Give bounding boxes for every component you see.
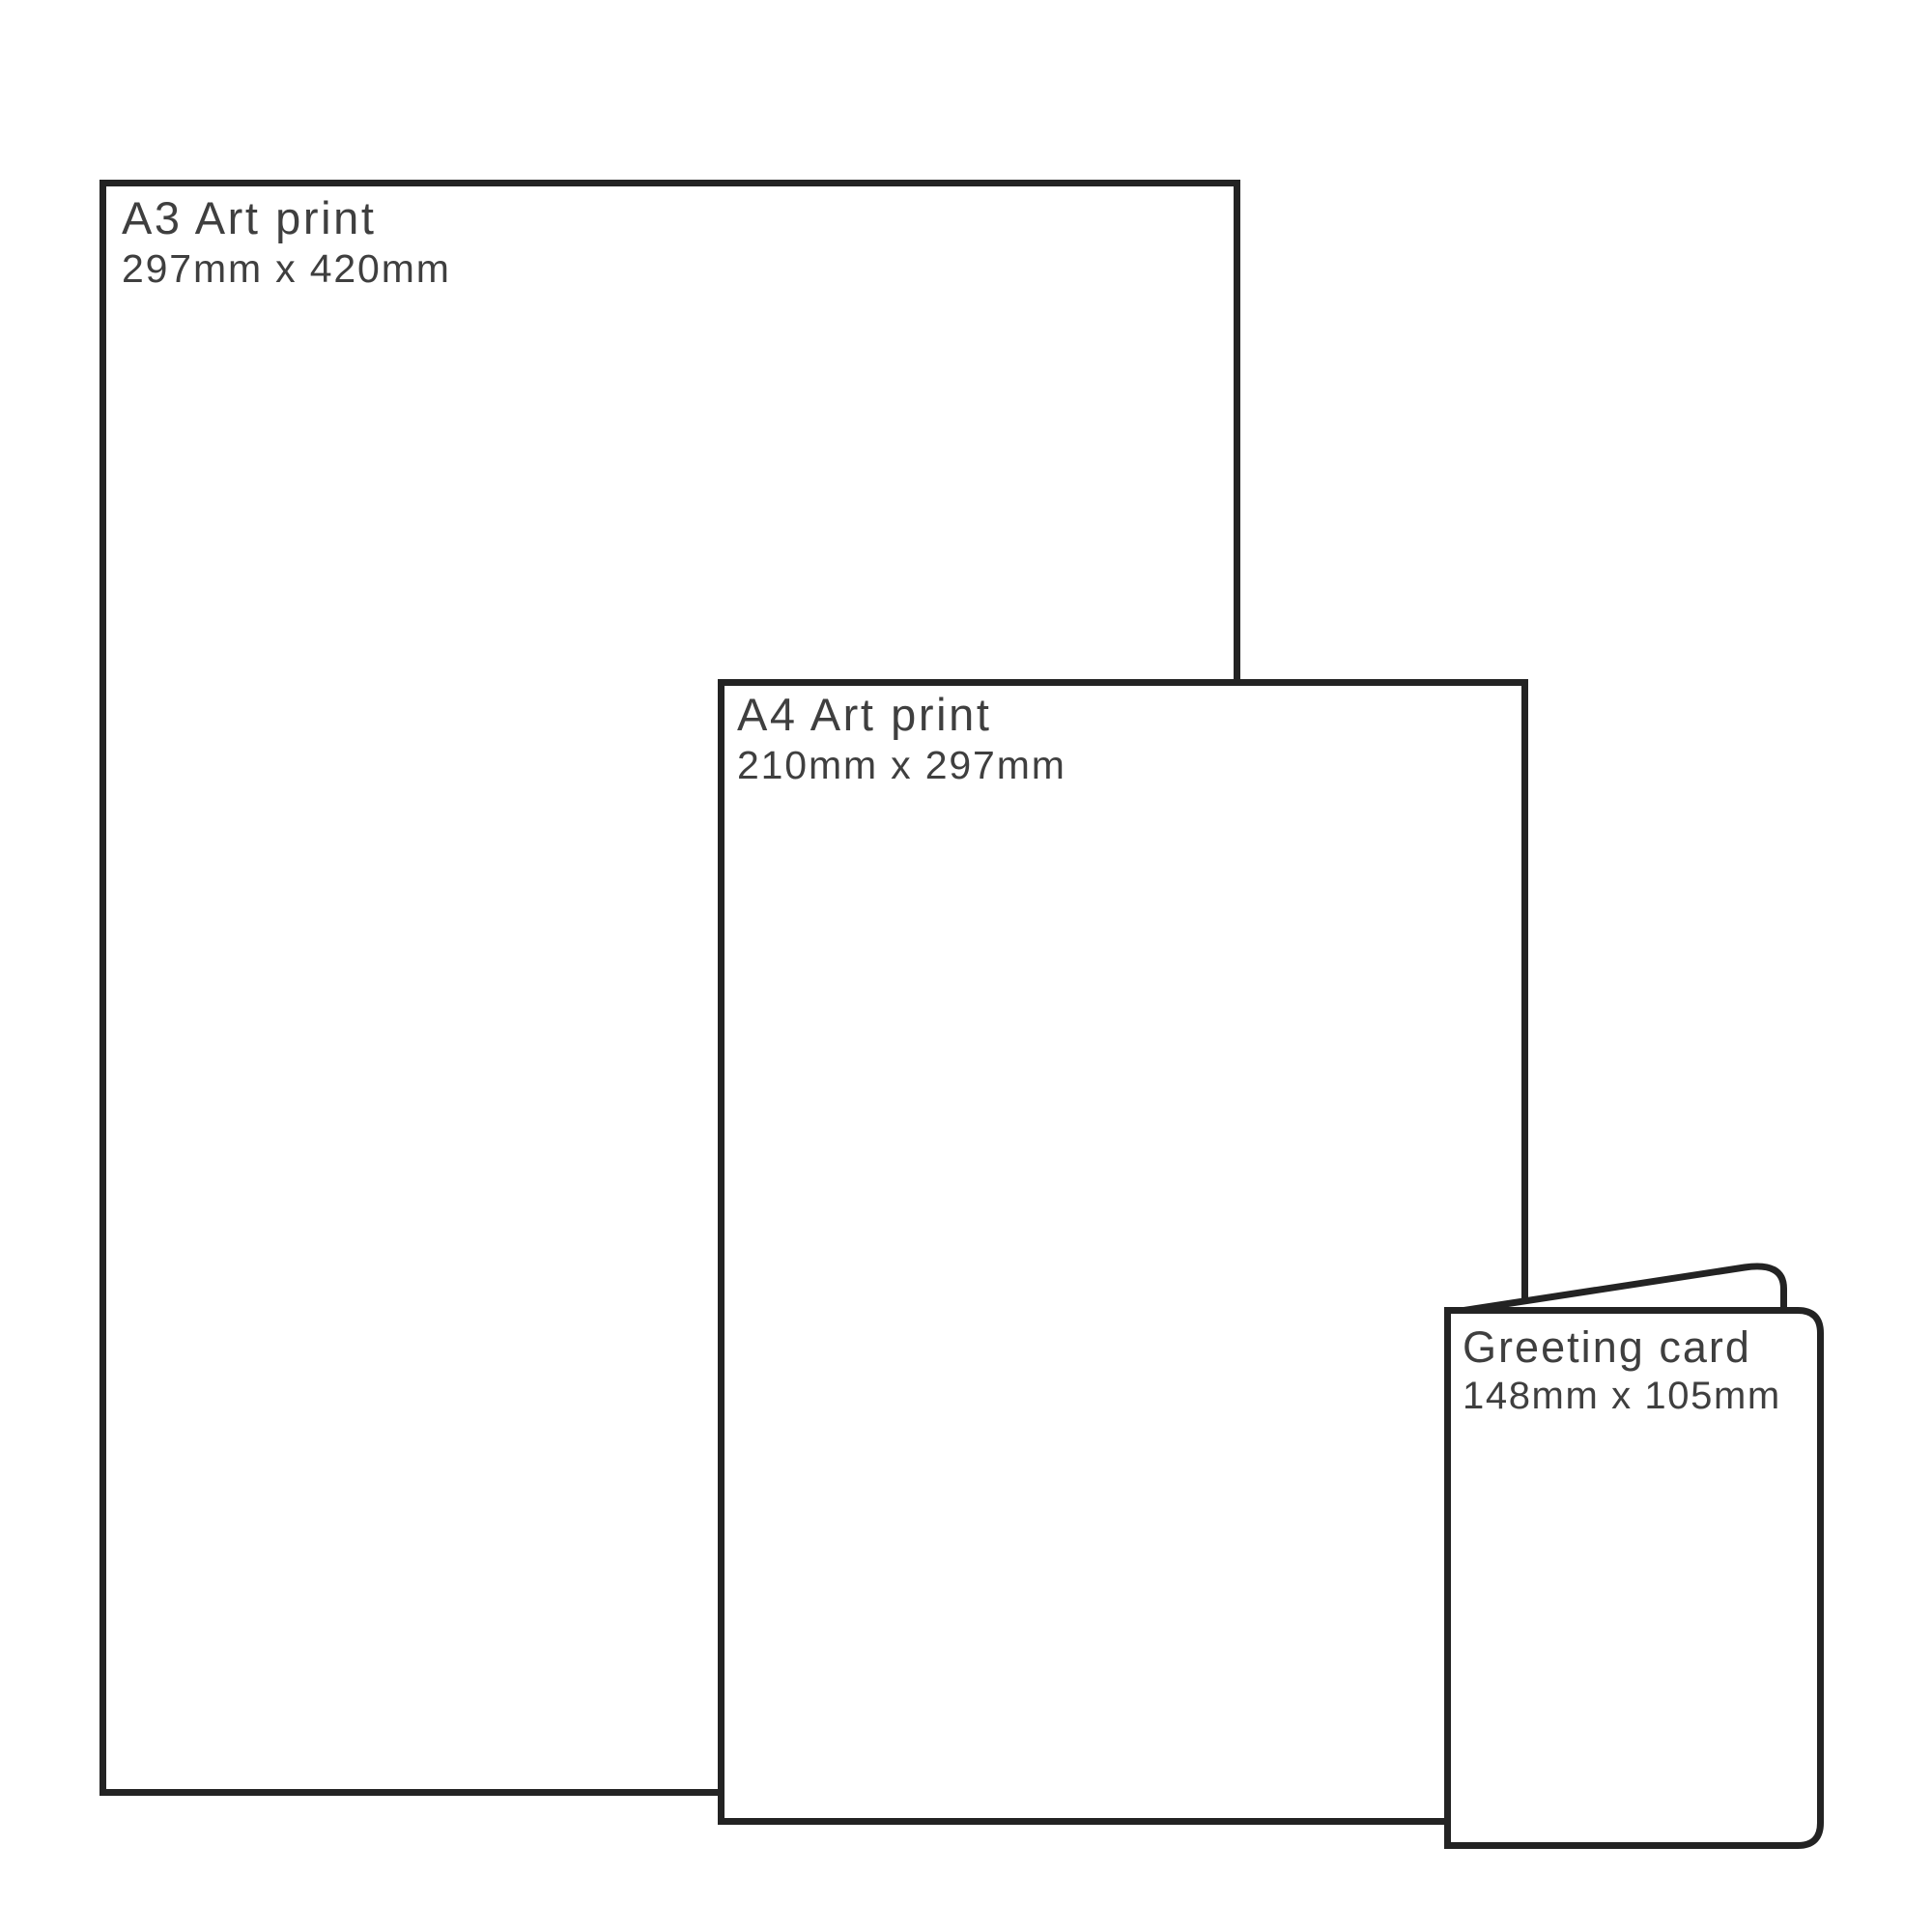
a4-dimensions: 210mm x 297mm (737, 741, 1066, 789)
a3-dimensions: 297mm x 420mm (122, 244, 451, 293)
greeting-card-title: Greeting card (1463, 1321, 1781, 1373)
a4-label: A4 Art print 210mm x 297mm (737, 688, 1066, 789)
a3-label: A3 Art print 297mm x 420mm (122, 191, 451, 293)
size-comparison-diagram: A3 Art print 297mm x 420mm A4 Art print … (0, 0, 1932, 1932)
a4-title: A4 Art print (737, 688, 1066, 741)
greeting-card-label: Greeting card 148mm x 105mm (1463, 1321, 1781, 1420)
a4-print-outline (722, 683, 1525, 1822)
greeting-card-dimensions: 148mm x 105mm (1463, 1373, 1781, 1420)
a3-title: A3 Art print (122, 191, 451, 244)
